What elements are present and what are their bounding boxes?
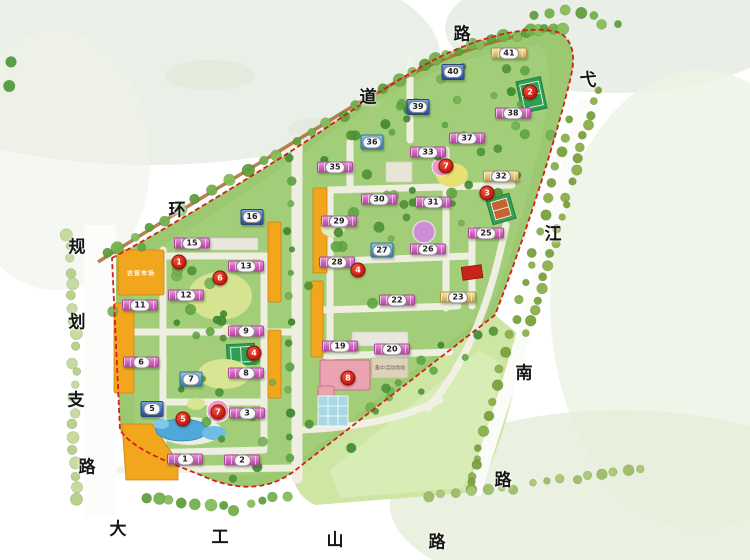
- building-31: 31: [415, 197, 451, 208]
- road-label-left-char-3: 路: [79, 453, 96, 478]
- road-label-top-char-2: 路: [454, 20, 471, 45]
- building-39: 39: [407, 99, 430, 115]
- building-number-label: 35: [325, 161, 344, 173]
- road-label-left-char-2: 支: [68, 386, 85, 411]
- road-label-bottom-char-2: 山: [327, 526, 344, 551]
- building-8: 8: [228, 368, 264, 379]
- building-number-label: 16: [242, 211, 261, 223]
- building-number-label: 8: [238, 367, 255, 379]
- road-label-right-char-0: 弋: [580, 66, 597, 91]
- building-33: 33: [410, 147, 446, 158]
- building-number-label: 6: [133, 356, 150, 368]
- building-25: 25: [468, 228, 504, 239]
- building-41: 41: [491, 48, 527, 59]
- building-number-label: 33: [418, 146, 437, 158]
- building-12: 12: [168, 290, 204, 301]
- building-38: 38: [495, 108, 531, 119]
- road-label-bottom-char-0: 大: [110, 515, 127, 540]
- building-2: 2: [224, 455, 260, 466]
- building-37: 37: [449, 133, 485, 144]
- labels-layer: 农贸市场 集中活动场地 环道路规划支路大工山路弋江南路1235678911121…: [0, 0, 750, 560]
- road-label-top-char-0: 环: [169, 196, 186, 221]
- building-11: 11: [122, 300, 158, 311]
- building-number-label: 40: [443, 66, 462, 78]
- building-number-label: 20: [382, 343, 401, 355]
- building-number-label: 38: [503, 107, 522, 119]
- facility-marker-7-3: 7: [211, 405, 226, 420]
- building-22: 22: [379, 295, 415, 306]
- building-number-label: 15: [182, 237, 201, 249]
- building-number-label: 39: [408, 101, 427, 113]
- building-number-label: 22: [387, 294, 406, 306]
- facility-marker-4-6: 4: [351, 263, 366, 278]
- building-number-label: 1: [177, 453, 194, 465]
- building-16: 16: [241, 209, 264, 225]
- building-number-label: 36: [362, 136, 381, 148]
- building-number-label: 7: [183, 373, 200, 385]
- facility-marker-7-7: 7: [439, 159, 454, 174]
- site-plan-canvas: 农贸市场 集中活动场地 环道路规划支路大工山路弋江南路1235678911121…: [0, 0, 750, 560]
- building-number-label: 2: [234, 454, 251, 466]
- building-32: 32: [483, 171, 519, 182]
- building-number-label: 19: [330, 340, 349, 352]
- building-number-label: 32: [491, 170, 510, 182]
- building-number-label: 29: [329, 215, 348, 227]
- road-label-right-char-3: 路: [495, 466, 512, 491]
- building-23: 23: [440, 292, 476, 303]
- building-13: 13: [228, 261, 264, 272]
- building-7: 7: [180, 372, 203, 387]
- facility-marker-3-8: 3: [480, 186, 495, 201]
- building-26: 26: [410, 244, 446, 255]
- road-label-bottom-char-3: 路: [429, 528, 446, 553]
- building-number-label: 27: [372, 244, 391, 256]
- activity-area-label: 集中活动场地: [375, 365, 405, 372]
- building-27: 27: [371, 243, 394, 258]
- building-1: 1: [167, 454, 203, 465]
- building-29: 29: [321, 216, 357, 227]
- building-number-label: 23: [448, 291, 467, 303]
- building-number-label: 31: [423, 196, 442, 208]
- building-number-label: 13: [236, 260, 255, 272]
- building-35: 35: [317, 162, 353, 173]
- road-label-top-char-1: 道: [360, 83, 377, 108]
- building-number-label: 26: [418, 243, 437, 255]
- building-9: 9: [228, 326, 264, 337]
- market-label: 农贸市场: [127, 269, 155, 278]
- building-19: 19: [322, 341, 358, 352]
- facility-marker-2-9: 2: [523, 85, 538, 100]
- building-number-label: 25: [476, 227, 495, 239]
- building-number-label: 3: [239, 407, 256, 419]
- building-20: 20: [374, 344, 410, 355]
- building-number-label: 37: [457, 132, 476, 144]
- building-number-label: 12: [176, 289, 195, 301]
- building-number-label: 28: [327, 256, 346, 268]
- facility-marker-1-0: 1: [172, 255, 187, 270]
- facility-marker-5-4: 5: [176, 412, 191, 427]
- building-3: 3: [229, 408, 265, 419]
- road-label-right-char-2: 南: [516, 359, 533, 384]
- building-5: 5: [141, 401, 164, 417]
- building-40: 40: [442, 64, 465, 80]
- building-number-label: 5: [144, 403, 161, 415]
- building-30: 30: [361, 194, 397, 205]
- road-label-left-char-1: 划: [69, 308, 86, 333]
- building-number-label: 41: [499, 47, 518, 59]
- facility-marker-6-1: 6: [213, 271, 228, 286]
- road-label-left-char-0: 规: [69, 233, 86, 258]
- building-6: 6: [123, 357, 159, 368]
- building-28: 28: [319, 257, 355, 268]
- road-label-right-char-1: 江: [545, 220, 562, 245]
- building-36: 36: [361, 135, 384, 150]
- facility-marker-4-2: 4: [247, 346, 262, 361]
- building-number-label: 9: [238, 325, 255, 337]
- building-number-label: 30: [369, 193, 388, 205]
- building-15: 15: [174, 238, 210, 249]
- facility-marker-8-5: 8: [341, 371, 356, 386]
- road-label-bottom-char-1: 工: [212, 523, 229, 548]
- building-number-label: 11: [130, 299, 149, 311]
